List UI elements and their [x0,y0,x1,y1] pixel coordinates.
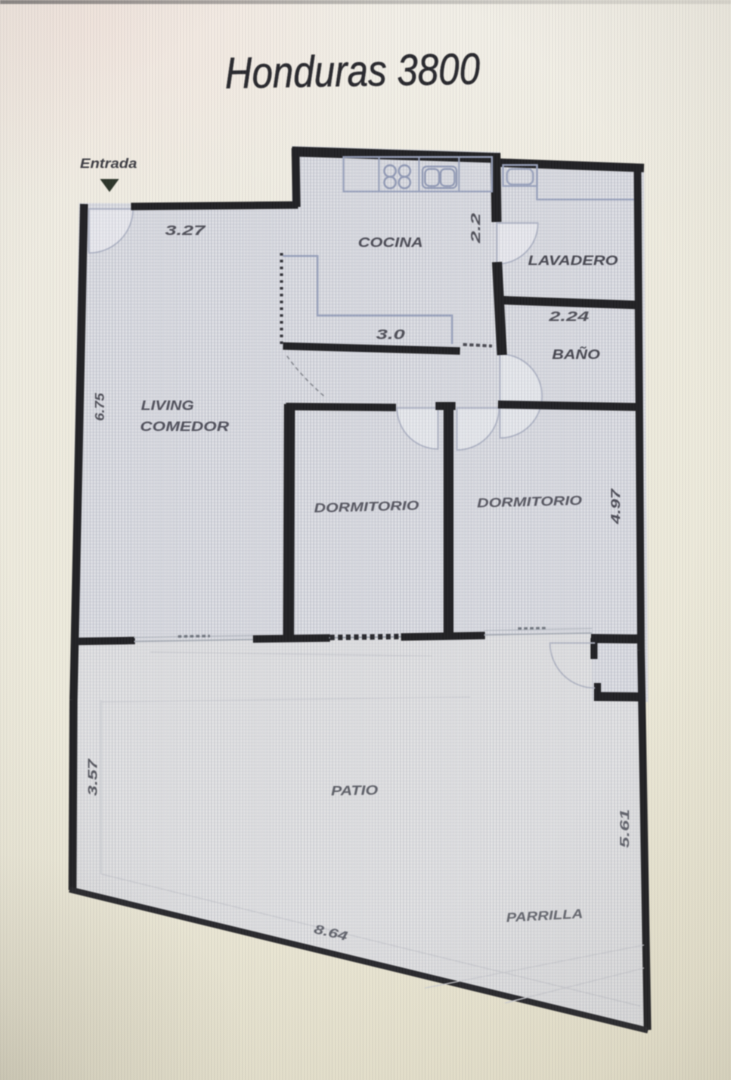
svg-text:DORMITORIO: DORMITORIO [314,498,419,516]
svg-text:6.75: 6.75 [93,392,107,421]
svg-text:COCINA: COCINA [358,235,423,250]
svg-text:2.24: 2.24 [547,309,589,324]
svg-text:3.27: 3.27 [165,223,207,238]
svg-text:2.2: 2.2 [468,212,483,245]
svg-text:3.57: 3.57 [85,758,100,796]
svg-text:5.61: 5.61 [617,809,632,848]
svg-text:DORMITORIO: DORMITORIO [477,493,582,511]
svg-text:Entrada: Entrada [80,156,138,171]
svg-text:BAÑO: BAÑO [552,347,601,362]
svg-text:4.97: 4.97 [608,488,623,525]
svg-text:PATIO: PATIO [331,783,379,799]
svg-text:COMEDOR: COMEDOR [140,419,229,434]
svg-text:3.0: 3.0 [376,327,406,342]
svg-text:LAVADERO: LAVADERO [528,253,619,268]
svg-text:Honduras 3800: Honduras 3800 [225,45,481,98]
svg-text:LIVING: LIVING [141,398,195,413]
